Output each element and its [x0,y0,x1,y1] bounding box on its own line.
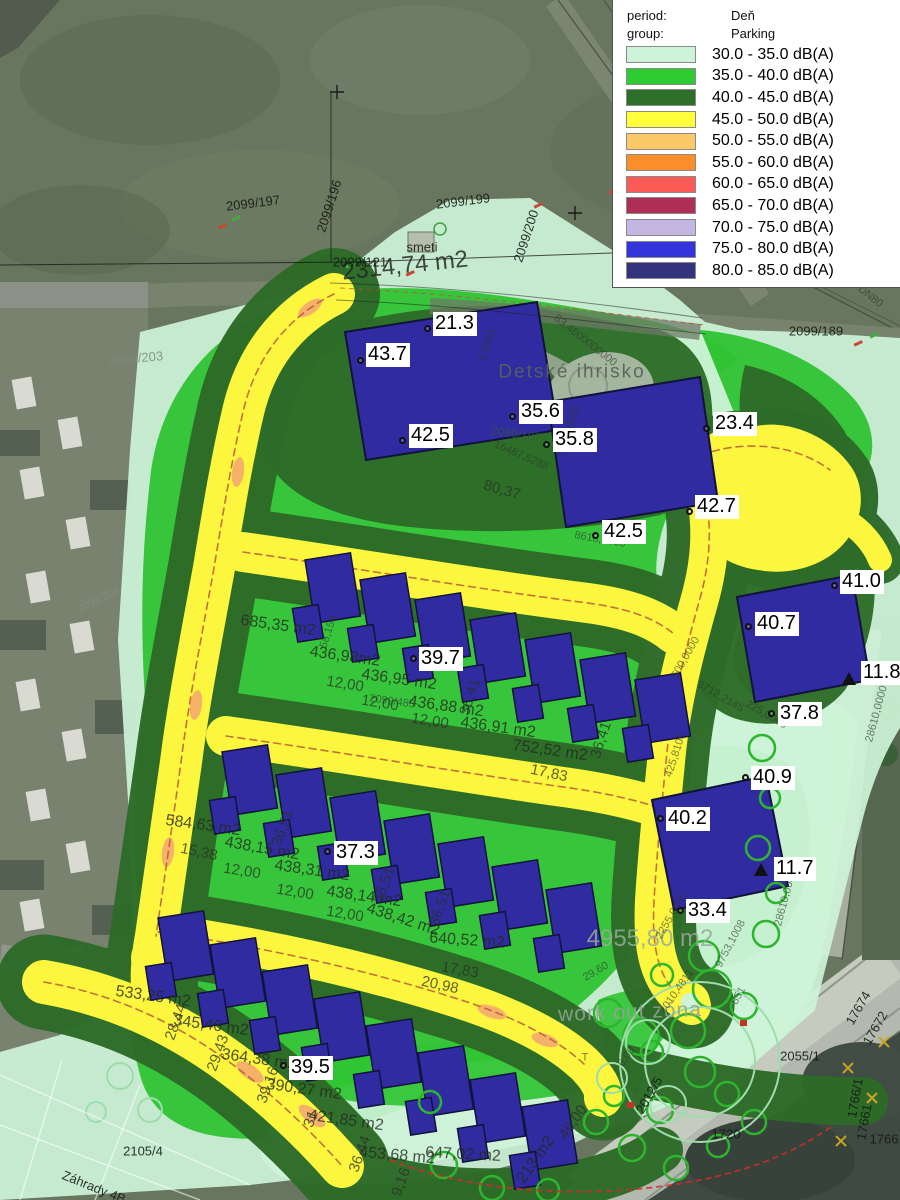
legend-color-swatch [626,68,696,85]
measurement-label: 37.3 [334,841,378,865]
house-building [347,624,378,662]
receiver-point-icon [686,508,693,515]
receiver-point-icon [677,907,684,914]
legend-period-label: period: [627,8,731,23]
measurement-label: 37.8 [778,702,822,726]
legend-range-label: 35.0 - 40.0 dB(A) [712,67,834,85]
measurement-label: 33.4 [686,899,730,923]
receiver-point-icon [742,774,749,781]
legend-entry: 40.0 - 45.0 dB(A) [626,87,834,109]
legend-color-swatch [626,241,696,258]
measurement-label: 35.6 [519,400,563,424]
legend-color-swatch [626,154,696,171]
legend-entries: 30.0 - 35.0 dB(A)35.0 - 40.0 dB(A)40.0 -… [626,44,834,282]
measurement-label: 41.0 [840,570,884,594]
receiver-point-icon [745,623,752,630]
house-building [567,704,598,742]
receiver-point-icon [399,437,406,444]
legend-color-swatch [626,133,696,150]
measurement-label: 40.7 [755,612,799,636]
house-building [209,796,240,834]
legend-color-swatch [626,46,696,63]
receiver-triangle-icon [754,863,768,876]
house-building [533,934,564,972]
measurement-label: 39.7 [419,647,463,671]
house-building [479,911,510,949]
house-building [292,604,323,642]
legend-color-swatch [626,262,696,279]
measurement-label: 39.5 [289,1056,333,1080]
legend-range-label: 50.0 - 55.0 dB(A) [712,132,834,150]
legend-entry: 65.0 - 70.0 dB(A) [626,195,834,217]
legend-entry: 80.0 - 85.0 dB(A) [626,260,834,282]
legend-color-swatch [626,111,696,128]
receiver-point-icon [357,357,364,364]
legend-range-label: 30.0 - 35.0 dB(A) [712,46,834,64]
receiver-point-icon [831,582,838,589]
house-building [353,1070,384,1108]
legend-range-label: 65.0 - 70.0 dB(A) [712,197,834,215]
legend-range-label: 60.0 - 65.0 dB(A) [712,175,834,193]
legend-header: period: Deň group: Parking [627,8,775,44]
legend-entry: 60.0 - 65.0 dB(A) [626,174,834,196]
receiver-point-icon [592,532,599,539]
receiver-point-icon [543,441,550,448]
house-building [405,1097,436,1135]
legend-group-label: group: [627,26,731,41]
receiver-point-icon [410,655,417,662]
measurement-label: 42.5 [409,424,453,448]
house-building [457,1124,488,1162]
measurement-label: 11.8 [861,661,900,685]
house-building [509,1151,540,1189]
legend-color-swatch [626,197,696,214]
house-building [145,962,176,1000]
house-building [263,819,294,857]
measurement-label: 40.2 [666,807,710,831]
house-building [512,684,543,722]
measurement-label: 40.9 [751,766,795,790]
legend-range-label: 70.0 - 75.0 dB(A) [712,219,834,237]
legend-entry: 75.0 - 80.0 dB(A) [626,238,834,260]
legend-color-swatch [626,176,696,193]
noise-map-viewport: 2314,74 m2685,35 m2436,98m2436,95 m2436,… [0,0,900,1200]
legend-range-label: 45.0 - 50.0 dB(A) [712,111,834,129]
legend-period-value: Deň [731,8,755,23]
receiver-triangle-icon [842,672,856,685]
legend-range-label: 75.0 - 80.0 dB(A) [712,240,834,258]
receiver-point-icon [324,848,331,855]
legend-entry: 45.0 - 50.0 dB(A) [626,109,834,131]
house-building [197,989,228,1027]
house-building [249,1016,280,1054]
legend-range-label: 40.0 - 45.0 dB(A) [712,89,834,107]
receiver-point-icon [657,815,664,822]
measurement-label: 43.7 [366,343,410,367]
legend-range-label: 80.0 - 85.0 dB(A) [712,262,834,280]
measurement-label: 35.8 [553,428,597,452]
legend-color-swatch [626,89,696,106]
receiver-point-icon [280,1062,287,1069]
measurement-label: 21.3 [433,312,477,336]
measurement-label: 11.7 [774,857,816,881]
house-building [371,865,402,903]
legend-group-value: Parking [731,26,775,41]
legend-color-swatch [626,219,696,236]
legend-range-label: 55.0 - 60.0 dB(A) [712,154,834,172]
legend-entry: 50.0 - 55.0 dB(A) [626,130,834,152]
legend-entry: 35.0 - 40.0 dB(A) [626,66,834,88]
receiver-point-icon [424,325,431,332]
house-building [622,724,653,762]
receiver-point-icon [703,425,710,432]
receiver-point-icon [768,710,775,717]
receiver-point-icon [509,413,516,420]
noise-legend-panel: period: Deň group: Parking 30.0 - 35.0 d… [612,0,900,288]
measurement-label: 42.5 [602,520,646,544]
legend-entry: 55.0 - 60.0 dB(A) [626,152,834,174]
measurement-label: 42.7 [695,495,739,519]
legend-entry: 30.0 - 35.0 dB(A) [626,44,834,66]
house-building [425,888,456,926]
measurement-label: 23.4 [713,412,757,436]
legend-entry: 70.0 - 75.0 dB(A) [626,217,834,239]
